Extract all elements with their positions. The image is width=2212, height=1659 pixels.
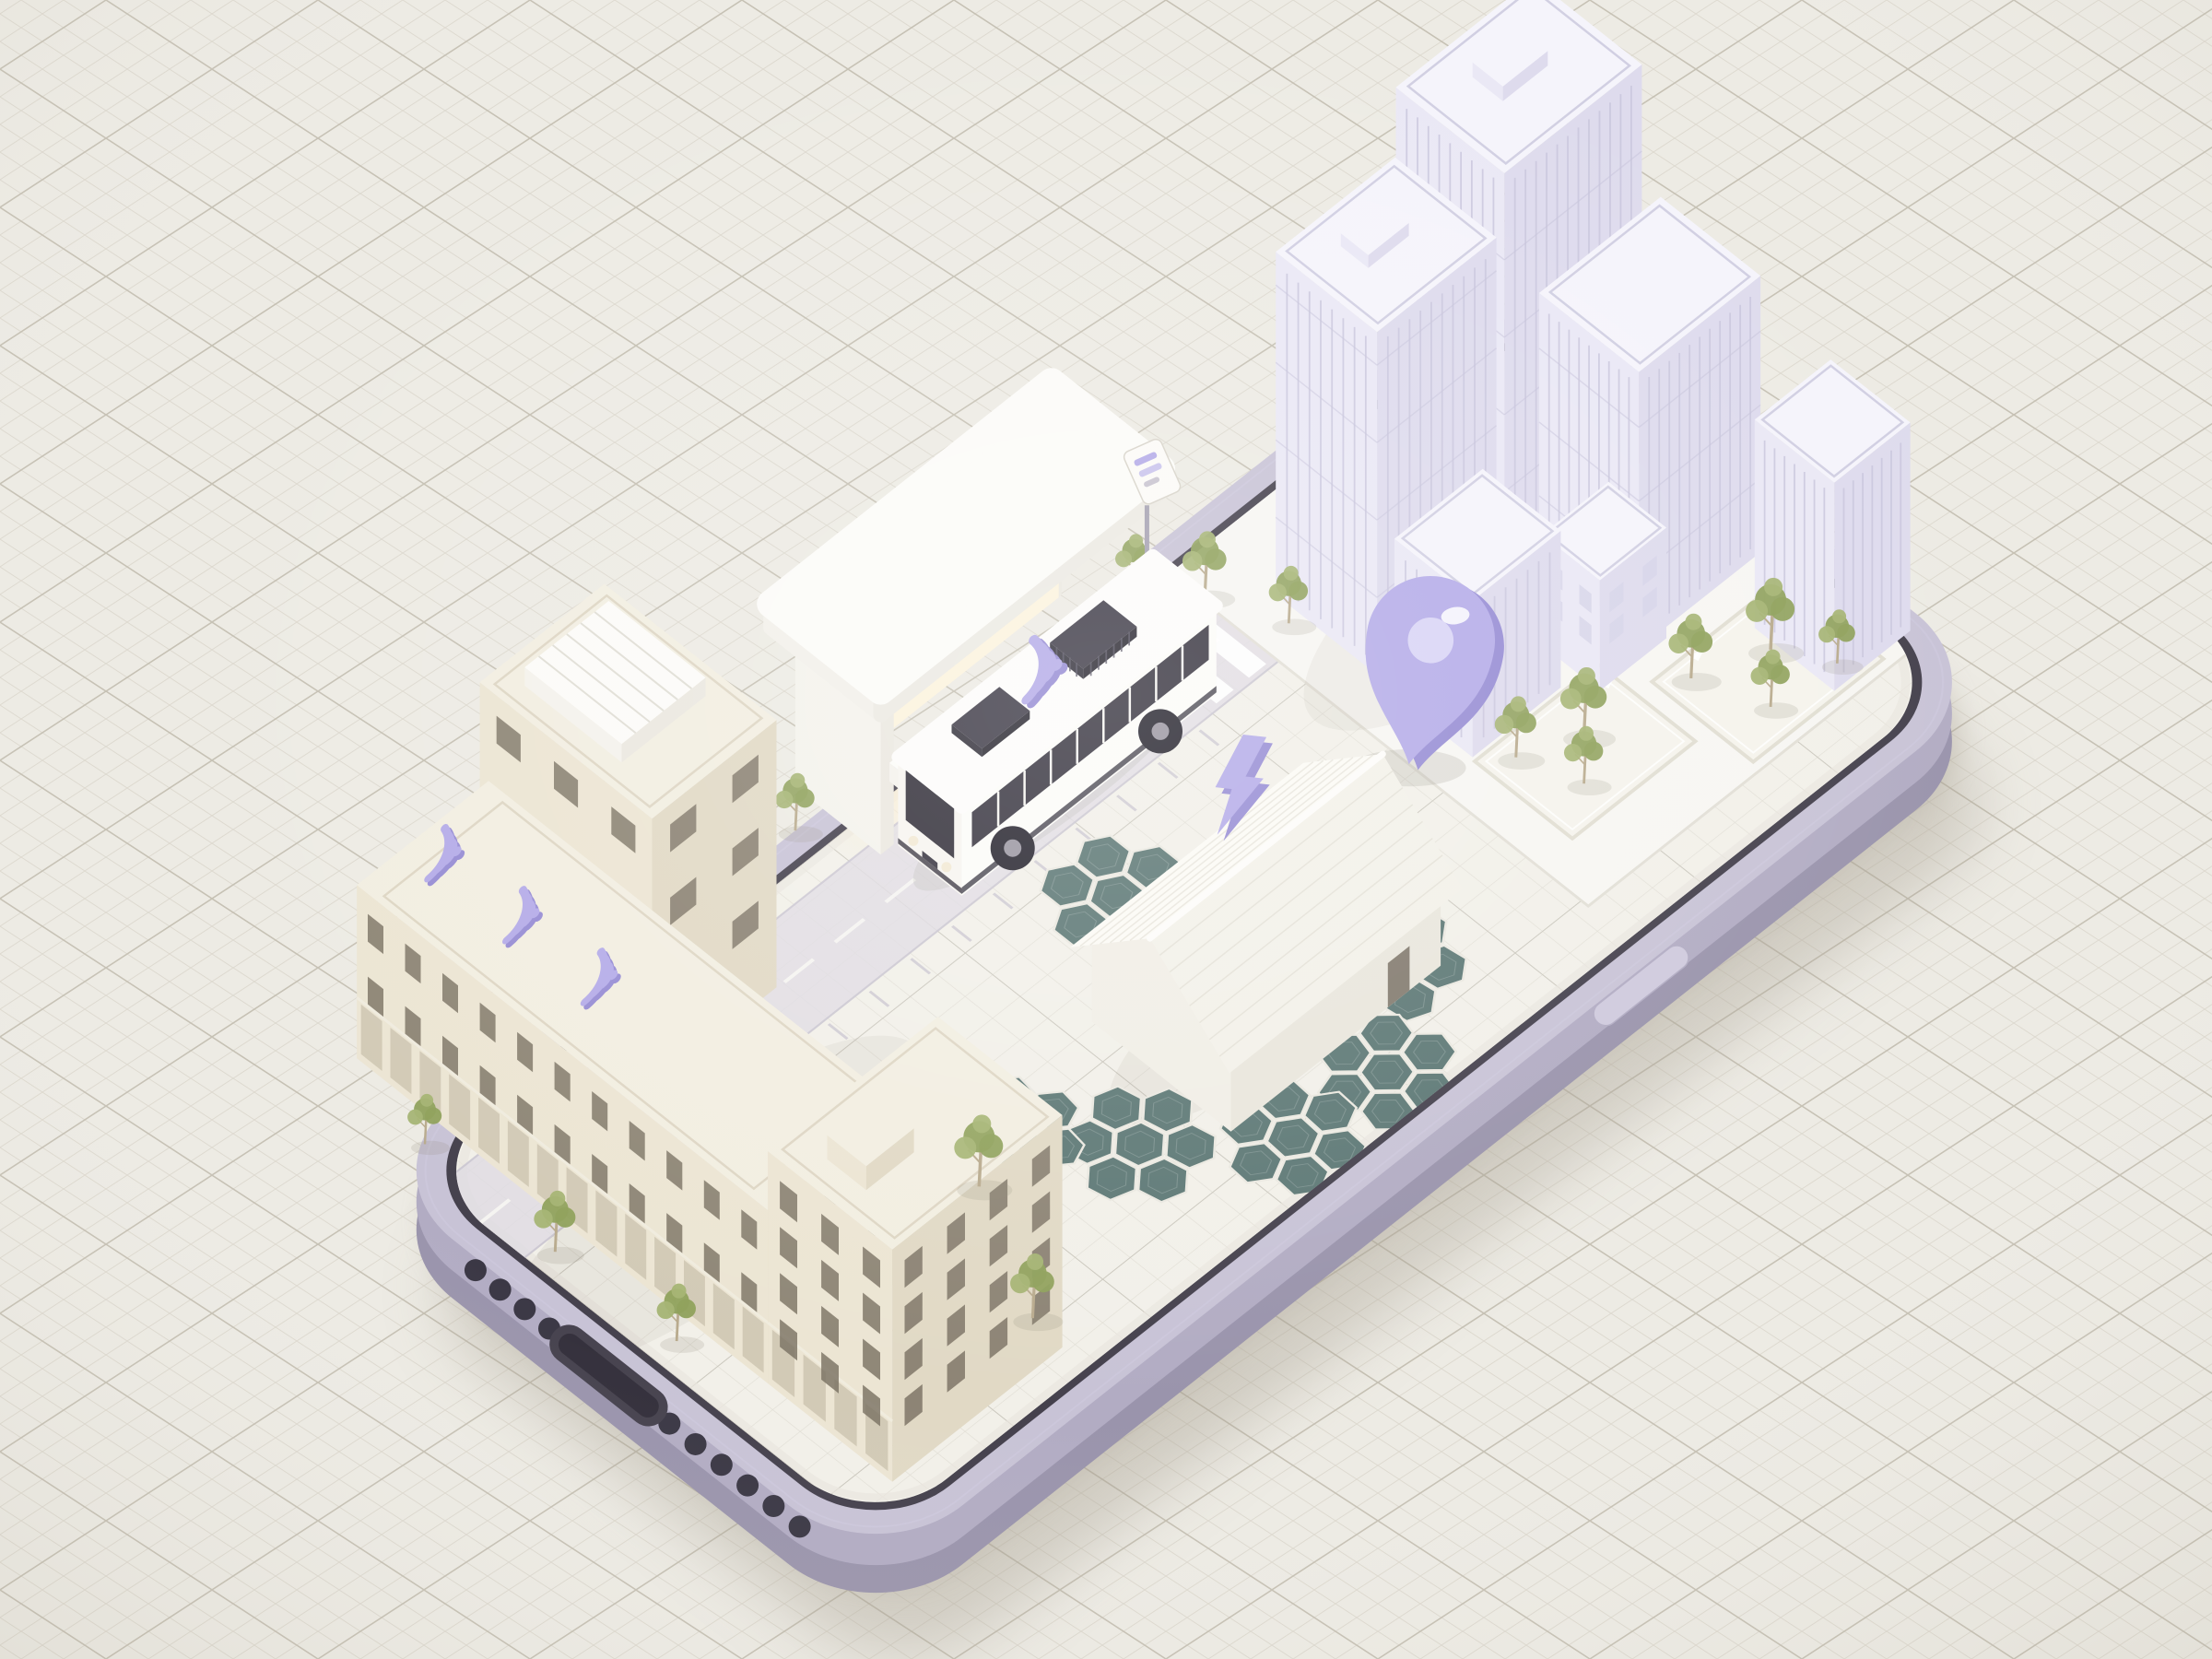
office-tower-corner xyxy=(1755,359,1911,690)
illustration-canvas xyxy=(0,0,2212,1659)
speaker-hole xyxy=(489,1278,512,1300)
speaker-hole xyxy=(465,1259,487,1281)
speaker-hole xyxy=(685,1433,707,1455)
speaker-hole xyxy=(789,1515,811,1537)
speaker-hole xyxy=(513,1298,535,1320)
scene-svg xyxy=(0,0,2212,1659)
speaker-hole xyxy=(711,1453,733,1476)
speaker-hole xyxy=(736,1475,759,1497)
speaker-hole xyxy=(762,1495,784,1517)
